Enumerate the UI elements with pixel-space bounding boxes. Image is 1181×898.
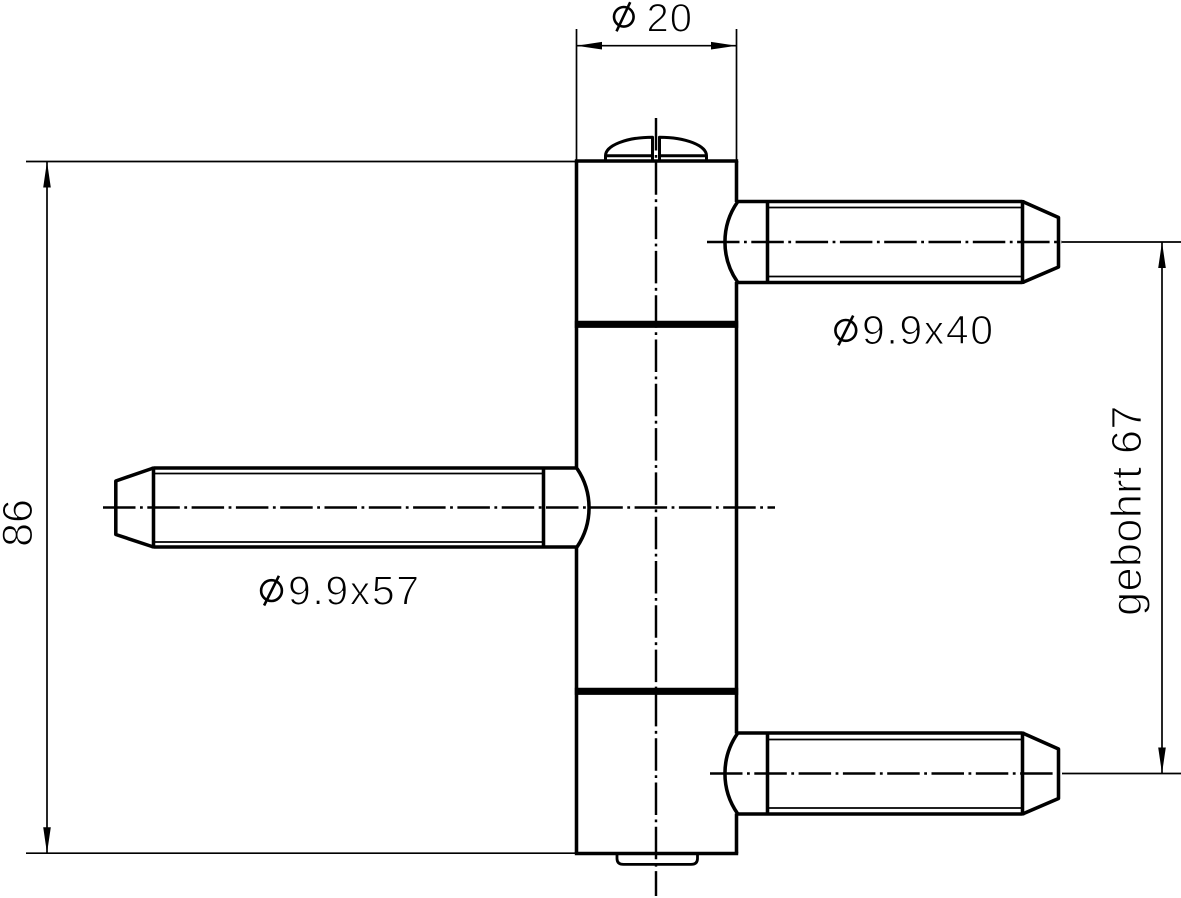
- svg-text:gebohrt 67: gebohrt 67: [1103, 405, 1151, 616]
- svg-text:9.9x40: 9.9x40: [862, 307, 995, 353]
- svg-text:86: 86: [0, 499, 42, 547]
- svg-text:20: 20: [647, 0, 694, 40]
- svg-text:9.9x57: 9.9x57: [288, 568, 421, 614]
